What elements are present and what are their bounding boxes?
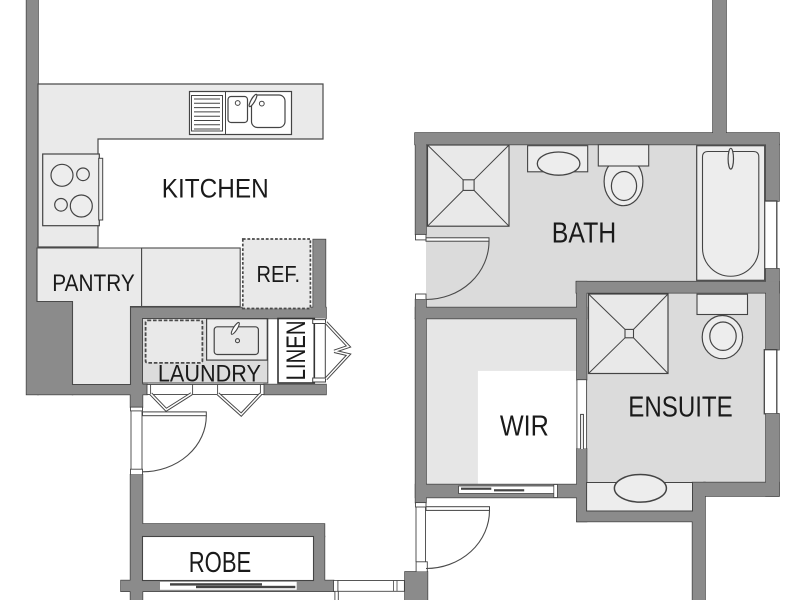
svg-text:REF.: REF. xyxy=(257,261,301,287)
svg-text:LAUNDRY: LAUNDRY xyxy=(158,361,261,388)
svg-text:WIR: WIR xyxy=(500,411,549,443)
svg-text:KITCHEN: KITCHEN xyxy=(162,174,269,204)
svg-text:LINEN: LINEN xyxy=(281,320,311,380)
svg-text:ENSUITE: ENSUITE xyxy=(628,392,733,424)
svg-text:ROBE: ROBE xyxy=(189,547,252,579)
svg-text:BATH: BATH xyxy=(552,218,617,250)
svg-text:PANTRY: PANTRY xyxy=(52,270,135,297)
